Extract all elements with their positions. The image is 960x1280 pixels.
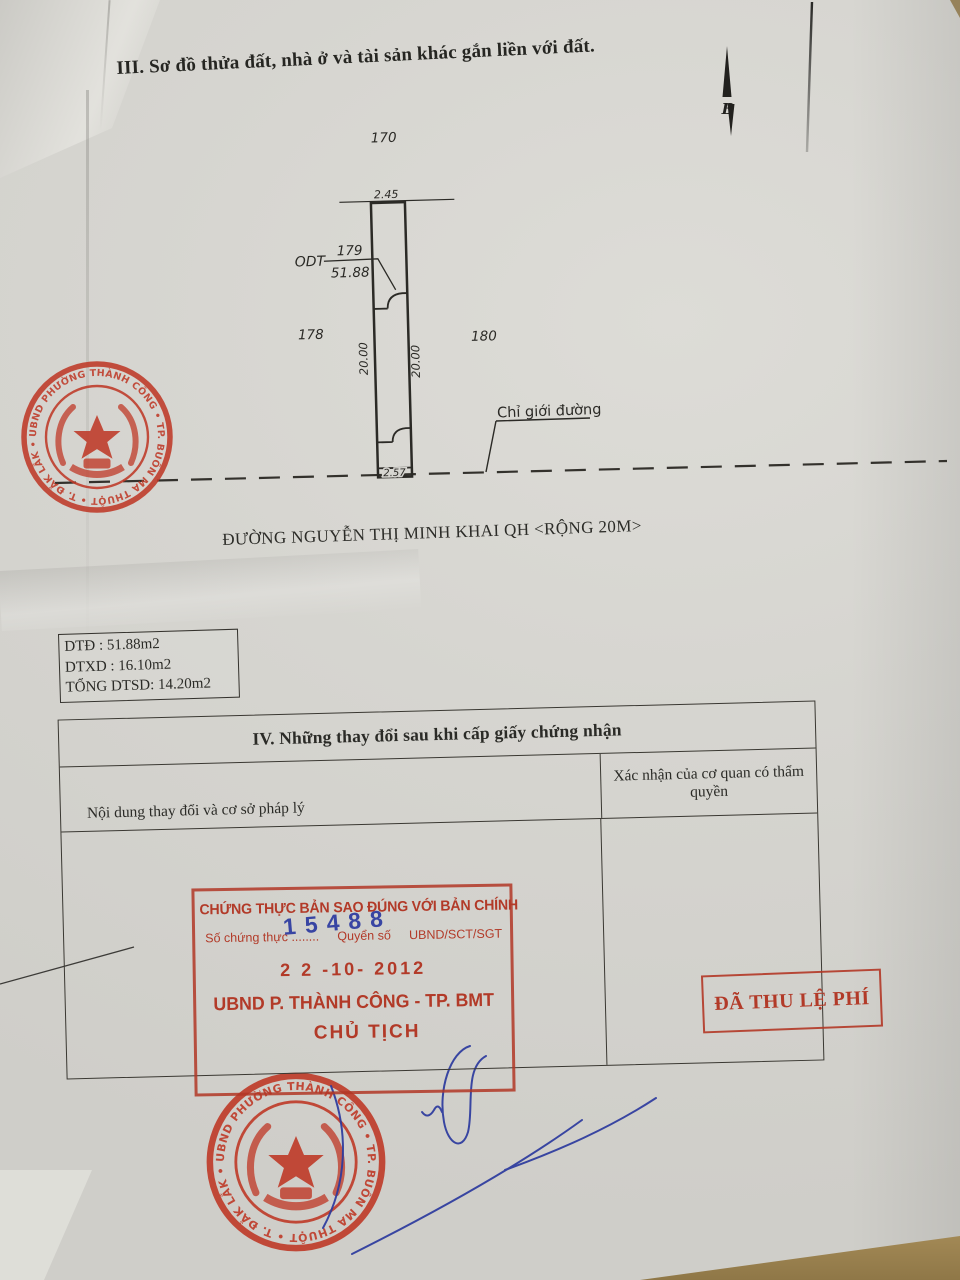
parcel-label-178: 178 [298, 327, 324, 344]
road-boundary-callout: Chỉ giới đường [486, 402, 602, 472]
door-arc-lower [377, 428, 411, 442]
scanned-document: 2.45 2.57 170 178 180 ODT 179 51.88 20.0… [0, 0, 960, 1280]
parcel-area: 51.88 [331, 265, 370, 282]
road-boundary-leader [486, 418, 590, 472]
column-header-content: Nội dung thay đổi và cơ sở pháp lý [60, 754, 601, 832]
parcel-label-180: 180 [471, 328, 497, 345]
dim-width-bottom: 2.57 [383, 468, 406, 480]
land-use-code: ODT [295, 254, 327, 271]
north-arrow-icon: B [721, 46, 735, 136]
edge-line-top-right [807, 2, 812, 152]
parcel-boundary [371, 202, 412, 477]
parcel-number: 179 [337, 243, 363, 260]
fee-paid-stamp: ĐÃ THU LỆ PHÍ [701, 969, 883, 1034]
fee-paid-label: ĐÃ THU LỆ PHÍ [714, 987, 870, 1016]
cert-office-code: UBND/SCT/SGT [409, 927, 502, 942]
dim-depth-left: 20.00 [356, 342, 371, 375]
door-arc-upper [373, 293, 407, 309]
area-line-tong: TỔNG DTSD: 14.20m2 [65, 673, 234, 699]
north-letter: B [721, 100, 735, 118]
round-seal-left: UBND PHƯỜNG THÀNH CÔNG • TP. BUÔN MA THU… [24, 364, 170, 510]
round-seal-bottom: UBND PHƯỜNG THÀNH CÔNG • TP. BUÔN MA THU… [210, 1076, 382, 1248]
cert-date-stamp: 2 2 -10- 2012 [196, 957, 511, 983]
dim-width-top: 2.45 [374, 188, 399, 202]
cert-signer-role: CHỦ TỊCH [197, 1020, 512, 1047]
area-summary-box: DTĐ : 51.88m2 DTXD : 16.10m2 TỔNG DTSD: … [58, 629, 240, 703]
parcel-label-170: 170 [371, 130, 397, 147]
road-dashed-line [55, 461, 947, 483]
certification-stamp: CHỨNG THỰC BẢN SAO ĐÚNG VỚI BẢN CHÍNH Số… [191, 883, 515, 1096]
cert-issuer: UBND P. THÀNH CÔNG - TP. BMT [202, 989, 505, 1016]
dim-depth-right: 20.00 [408, 345, 423, 378]
plot-sketch: 2.45 2.57 170 178 180 ODT 179 51.88 20.0… [291, 127, 500, 481]
column-header-confirmation: Xác nhận của cơ quan có thẩm quyền [600, 749, 818, 818]
